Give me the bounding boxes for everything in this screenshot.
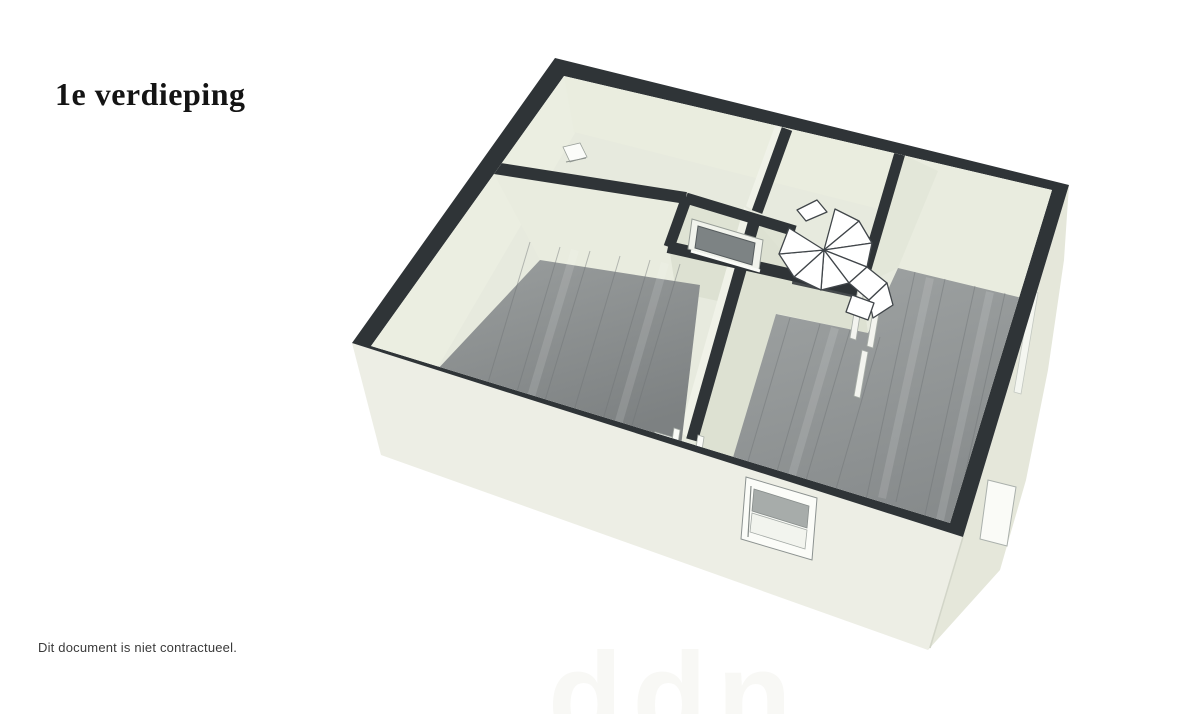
- disclaimer-text: Dit document is niet contractueel.: [38, 640, 237, 655]
- document-page: ddn 1e verdieping: [0, 0, 1200, 714]
- floor-plan-3d: [0, 0, 1200, 714]
